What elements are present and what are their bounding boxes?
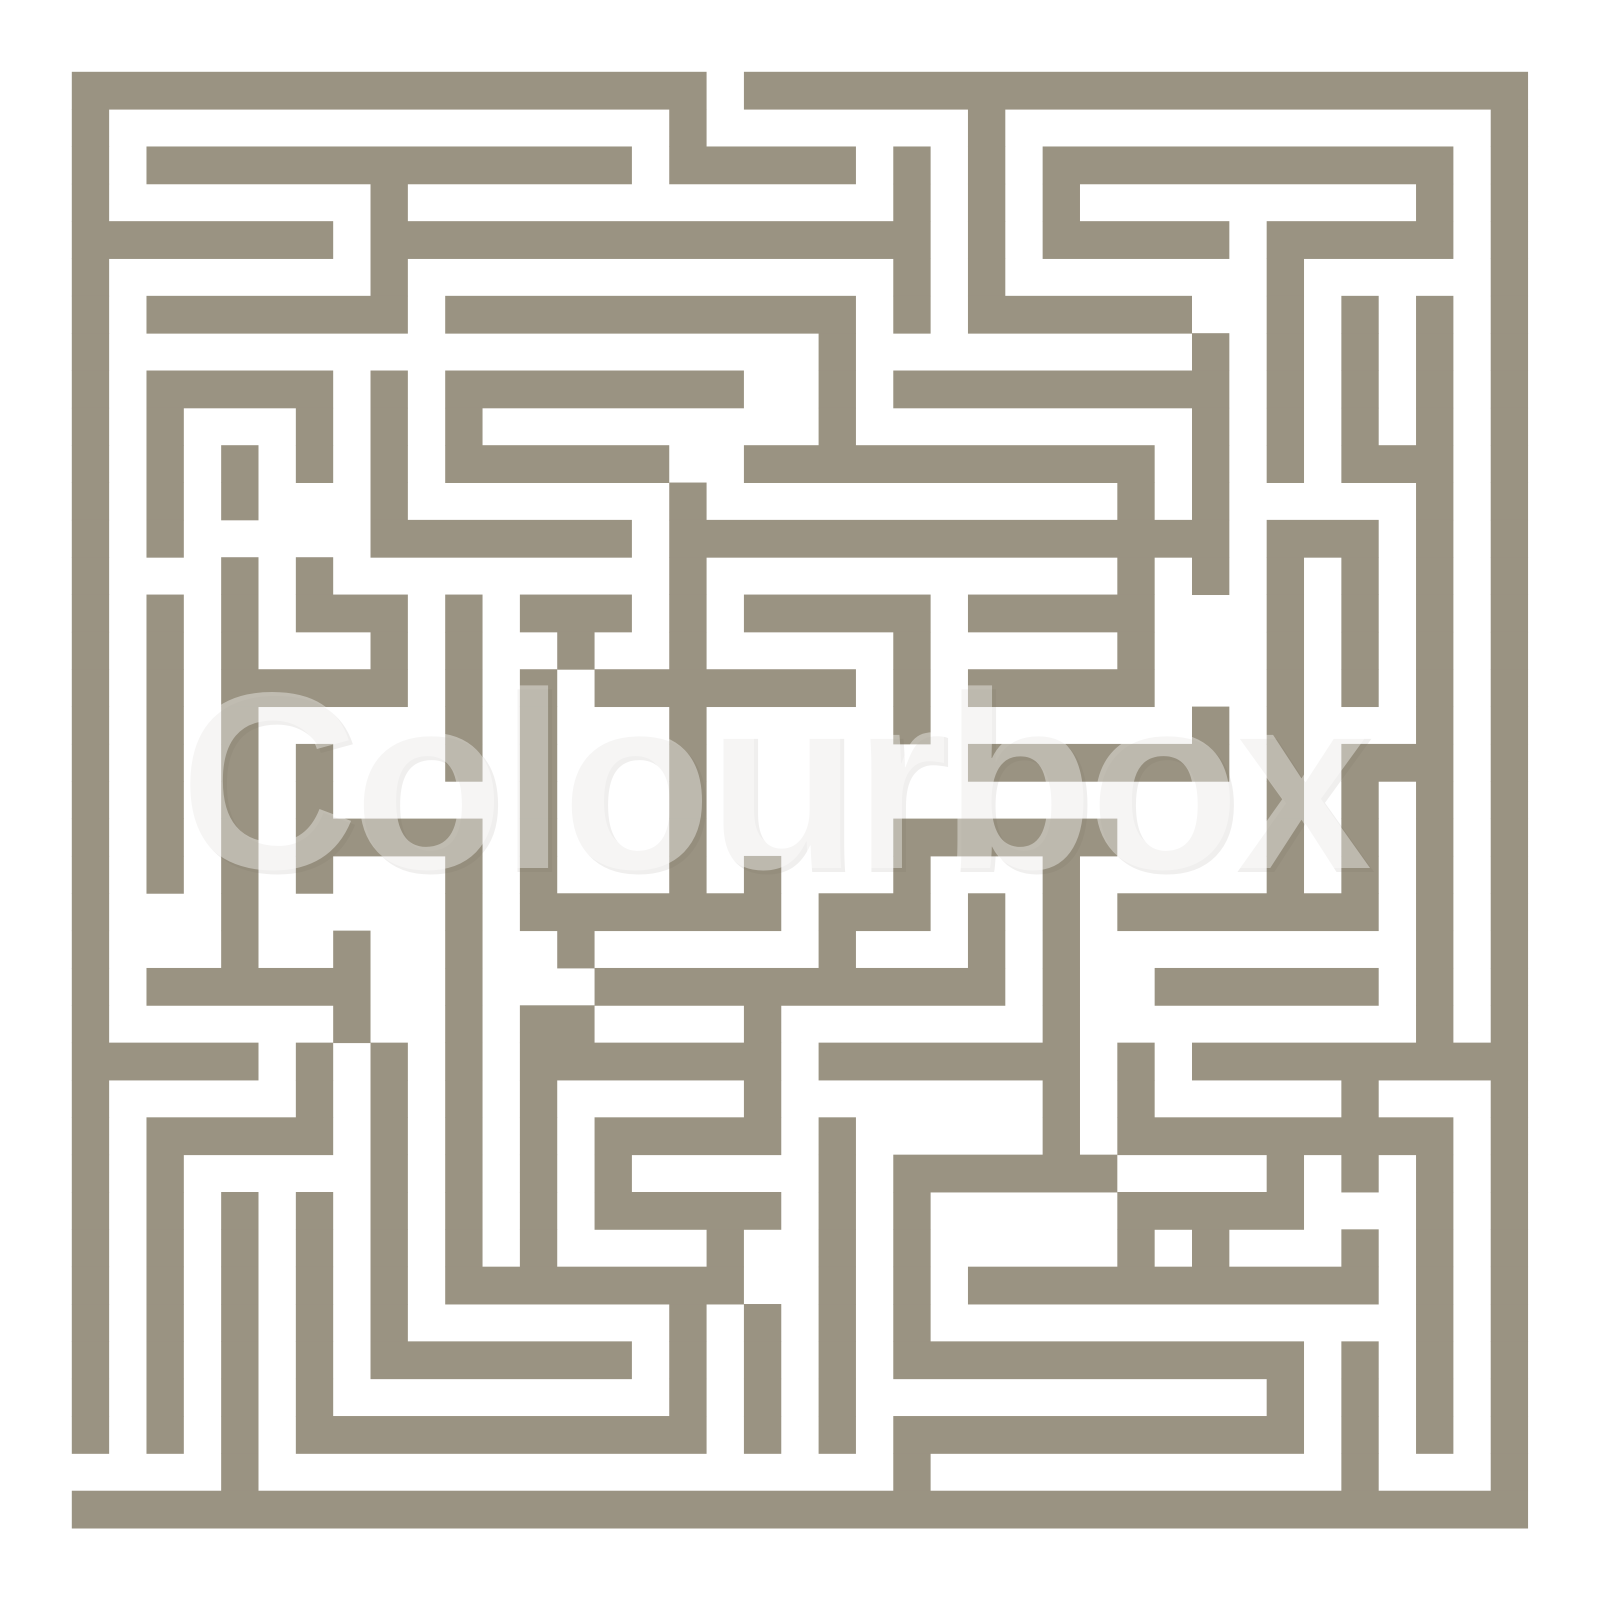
svg-text:Colourbox: Colourbox xyxy=(176,641,1371,922)
